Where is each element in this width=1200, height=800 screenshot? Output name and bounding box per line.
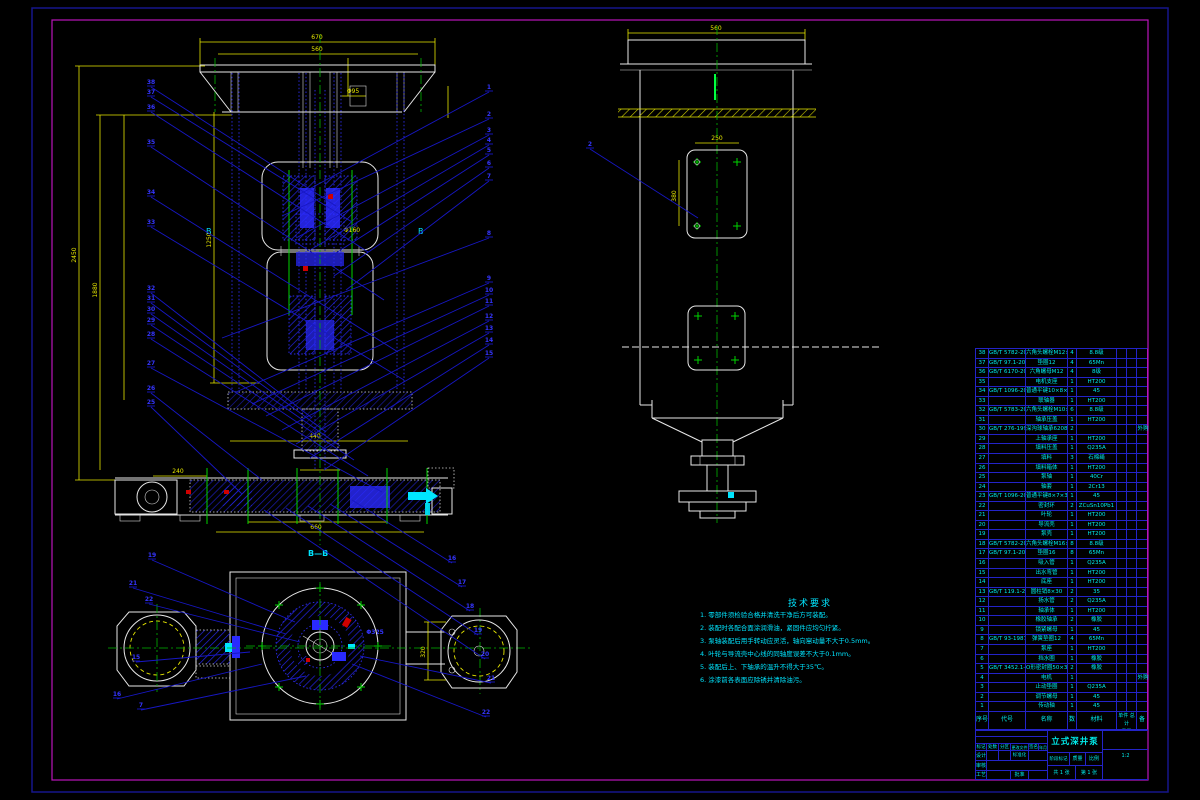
- bom-cell: [1127, 597, 1137, 606]
- bom-cell: [989, 378, 1026, 387]
- tb-zone: 分区: [999, 744, 1011, 751]
- bom-cell: [1117, 664, 1127, 673]
- bom-cell: [1127, 588, 1137, 597]
- bom-cell: [1127, 464, 1137, 473]
- bom-row: 6挡水圈1橡胶: [976, 655, 1147, 665]
- svg-text:Φ95: Φ95: [347, 88, 360, 95]
- bom-header-code: 代号: [989, 712, 1026, 729]
- bom-cell: 65Mn: [1077, 549, 1117, 558]
- bom-row: 12扬水管2Q235A: [976, 597, 1147, 607]
- bom-cell: 普通平键10×8×50: [1026, 387, 1068, 396]
- bom-cell: [1127, 521, 1137, 530]
- tb-sheet-no: 第 1 张: [1076, 766, 1103, 780]
- bom-cell: 泵座: [1026, 645, 1068, 654]
- bom-cell: 1: [1068, 521, 1077, 530]
- bom-cell: [1137, 588, 1149, 597]
- leader-line: [117, 664, 262, 699]
- bom-cell: 锁紧螺母: [1026, 626, 1068, 635]
- bom-cell: 六角头螺栓M12×45: [1026, 349, 1068, 358]
- bom-cell: 1: [1068, 530, 1077, 539]
- bom-cell: [1137, 655, 1149, 664]
- bom-cell: [1127, 549, 1137, 558]
- bom-row: 2调节螺母145: [976, 693, 1147, 703]
- bom-cell: GB/T 5782-2000: [989, 349, 1026, 358]
- balloon-number: 34: [147, 189, 155, 196]
- bom-cell: 1: [1068, 607, 1077, 616]
- bom-cell: 泵壳: [1026, 530, 1068, 539]
- bom-cell: [989, 511, 1026, 520]
- bom-cell: 6: [976, 655, 989, 664]
- bom-cell: [1117, 378, 1127, 387]
- tb-mark: 标记: [975, 744, 987, 751]
- bom-cell: [1117, 588, 1127, 597]
- bom-row: 24轴套12Cr13: [976, 483, 1147, 493]
- side-view-linework: [618, 26, 880, 523]
- leader-line: [222, 238, 489, 338]
- bom-cell: [989, 444, 1026, 453]
- balloon-number: 2: [588, 141, 592, 148]
- bom-row: 15出水弯管1HT200: [976, 569, 1147, 579]
- tech-req-line: 3. 泵轴装配后用手转动应灵活，轴向窜动量不大于0.5mm。: [700, 635, 890, 648]
- bom-cell: [1137, 597, 1149, 606]
- bom-cell: [1117, 635, 1127, 644]
- bom-cell: [1127, 406, 1137, 415]
- bom-row: 29上轴承座1HT200: [976, 435, 1147, 445]
- bom-row: 9锁紧螺母145: [976, 626, 1147, 636]
- bom-cell: 外购: [1137, 425, 1149, 434]
- bom-cell: [989, 483, 1026, 492]
- bom-cell: [1117, 655, 1127, 664]
- bom-header-no: 序号: [976, 712, 989, 729]
- bom-cell: 密封环: [1026, 502, 1068, 511]
- bom-row: 14底座1HT200: [976, 578, 1147, 588]
- bom-cell: [1117, 473, 1127, 482]
- bom-cell: [1117, 607, 1127, 616]
- bom-row: 8GB/T 93-1987弹簧垫圈12465Mn: [976, 635, 1147, 645]
- bom-row: 4电机1外购: [976, 674, 1147, 684]
- bom-cell: Q235A: [1077, 683, 1117, 692]
- bom-cell: 8: [1068, 540, 1077, 549]
- bom-cell: 36: [976, 368, 989, 377]
- bom-cell: 橡胶: [1077, 616, 1117, 625]
- cad-drawing-page: B B 670 560 2450 1880 1250 Φ95 Φ160 440 …: [0, 0, 1200, 800]
- balloon-number: 11: [485, 298, 493, 305]
- bom-cell: 填料: [1026, 454, 1068, 463]
- balloon-number: 22: [145, 596, 153, 603]
- bom-cell: 14: [976, 578, 989, 587]
- bom-cell: 35: [976, 378, 989, 387]
- bom-cell: [1137, 397, 1149, 406]
- bom-cell: 电机: [1026, 674, 1068, 683]
- tb-stage: 阶段标记: [1048, 753, 1070, 766]
- bom-cell: 普通平键8×7×36: [1026, 492, 1068, 501]
- bom-cell: [1127, 397, 1137, 406]
- svg-text:Φ325: Φ325: [366, 629, 384, 636]
- bom-cell: 1: [1068, 578, 1077, 587]
- bom-row: 10橡胶轴承2橡胶: [976, 616, 1147, 626]
- bom-cell: [989, 416, 1026, 425]
- bom-cell: 38: [976, 349, 989, 358]
- bom-header-name: 名称: [1026, 712, 1068, 729]
- bom-cell: [989, 454, 1026, 463]
- bom-cell: [1137, 464, 1149, 473]
- bom-cell: 出水弯管: [1026, 569, 1068, 578]
- bom-cell: [989, 674, 1026, 683]
- bom-cell: HT200: [1077, 578, 1117, 587]
- bom-cell: 导流壳: [1026, 521, 1068, 530]
- balloon-number: 30: [147, 306, 155, 313]
- bom-cell: 6: [1068, 406, 1077, 415]
- bom-cell: 45: [1077, 492, 1117, 501]
- bom-cell: 六角头螺栓M16×60: [1026, 540, 1068, 549]
- bom-cell: [1137, 702, 1149, 711]
- bom-cell: 19: [976, 530, 989, 539]
- bom-cell: 1: [1068, 655, 1077, 664]
- leader-line: [151, 368, 382, 492]
- balloon-number: 16: [113, 691, 121, 698]
- balloon-number: 25: [147, 399, 155, 406]
- bom-cell: [1137, 645, 1149, 654]
- bom-cell: [1137, 454, 1149, 463]
- balloon-number: 33: [147, 219, 155, 226]
- bom-cell: [1137, 444, 1149, 453]
- bom-cell: 24: [976, 483, 989, 492]
- bom-cell: 65Mn: [1077, 635, 1117, 644]
- bom-cell: 深沟球轴承6208: [1026, 425, 1068, 434]
- balloon-number: 36: [147, 104, 155, 111]
- bom-header-weight: 单件 总计 重量: [1117, 712, 1137, 729]
- bom-cell: 20: [976, 521, 989, 530]
- bom-cell: 45: [1077, 626, 1117, 635]
- bom-cell: 37: [976, 359, 989, 368]
- balloon-number: 20: [481, 651, 489, 658]
- bom-row: 16吸入管1Q235A: [976, 559, 1147, 569]
- bom-row: 11轴承体1HT200: [976, 607, 1147, 617]
- tb-scale-value: 1:2: [1103, 750, 1148, 762]
- bom-cell: 8: [976, 635, 989, 644]
- bom-cell: 1: [1068, 416, 1077, 425]
- bom-cell: 垫圈12: [1026, 359, 1068, 368]
- bom-row: 17GB/T 97.1-2002垫圈16865Mn: [976, 549, 1147, 559]
- leader-line: [590, 149, 698, 218]
- bom-row: 27填料3石棉绳: [976, 454, 1147, 464]
- balloon-number: 21: [487, 675, 495, 682]
- bom-cell: [1117, 693, 1127, 702]
- tech-req-line: 1. 零部件须检验合格并清洗干净后方可装配。: [700, 609, 890, 622]
- bom-cell: [1127, 454, 1137, 463]
- bom-cell: [989, 569, 1026, 578]
- leader-line: [151, 97, 352, 222]
- bom-cell: 30: [976, 425, 989, 434]
- bom-cell: 2: [1068, 616, 1077, 625]
- bom-row: 36GB/T 6170-2000六角螺母M1248级: [976, 368, 1147, 378]
- bom-cell: 10: [976, 616, 989, 625]
- balloon-number: 18: [466, 603, 474, 610]
- bom-cell: 8.8级: [1077, 406, 1117, 415]
- section-view-label: B—B: [308, 549, 328, 558]
- bom-cell: 4: [1068, 635, 1077, 644]
- bom-cell: [989, 397, 1026, 406]
- bom-cell: 26: [976, 464, 989, 473]
- bom-cell: 1: [1068, 464, 1077, 473]
- balloon-number: 19: [148, 552, 156, 559]
- bom-cell: [1127, 473, 1137, 482]
- bom-cell: O形密封圈50×3.55: [1026, 664, 1068, 673]
- bom-cell: 1: [1068, 473, 1077, 482]
- balloon-number: 28: [147, 331, 155, 338]
- bom-cell: GB/T 1096-2003: [989, 387, 1026, 396]
- bom-cell: 23: [976, 492, 989, 501]
- bom-cell: [1117, 397, 1127, 406]
- bom-row: 35电机支座1HT200: [976, 378, 1147, 388]
- bom-cell: HT200: [1077, 435, 1117, 444]
- bom-cell: HT200: [1077, 397, 1117, 406]
- bom-cell: 1: [1068, 492, 1077, 501]
- bom-cell: 2: [1068, 597, 1077, 606]
- bom-cell: 2: [1068, 502, 1077, 511]
- bom-cell: 1: [1068, 387, 1077, 396]
- bom-cell: [1137, 693, 1149, 702]
- bom-cell: [1127, 702, 1137, 711]
- bom-cell: [989, 655, 1026, 664]
- bom-cell: [1077, 674, 1117, 683]
- bom-cell: [1137, 626, 1149, 635]
- balloon-number: 2: [487, 111, 491, 118]
- bom-cell: 25: [976, 473, 989, 482]
- bom-cell: HT200: [1077, 464, 1117, 473]
- bom-cell: HT200: [1077, 416, 1117, 425]
- bom-cell: [1127, 683, 1137, 692]
- bom-cell: 4: [1068, 359, 1077, 368]
- tb-count: 处数: [987, 744, 999, 751]
- balloon-number: 29: [147, 317, 155, 324]
- bom-row: 37GB/T 97.1-2002垫圈12465Mn: [976, 359, 1147, 369]
- bom-header-note: 备注: [1137, 712, 1147, 729]
- bom-cell: 扬水管: [1026, 597, 1068, 606]
- technical-requirements-title: 技术要求: [750, 596, 870, 609]
- bom-cell: [1127, 425, 1137, 434]
- bom-cell: 34: [976, 387, 989, 396]
- bom-cell: 橡胶轴承: [1026, 616, 1068, 625]
- balloon-number: 14: [485, 337, 493, 344]
- balloon-number: 15: [132, 654, 140, 661]
- bom-cell: HT200: [1077, 645, 1117, 654]
- bom-row: 22密封环2ZCuSn10Pb1: [976, 502, 1147, 512]
- bom-cell: [1137, 387, 1149, 396]
- bom-cell: 1: [1068, 626, 1077, 635]
- bom-cell: 12: [976, 597, 989, 606]
- balloon-number: 13: [485, 325, 493, 332]
- bom-row: 33联轴器1HT200: [976, 397, 1147, 407]
- bom-cell: 4: [1068, 349, 1077, 358]
- bom-cell: Q235A: [1077, 597, 1117, 606]
- bom-cell: 上轴承座: [1026, 435, 1068, 444]
- bom-cell: [989, 530, 1026, 539]
- bom-cell: [1137, 416, 1149, 425]
- bom-cell: [989, 502, 1026, 511]
- bom-cell: [1127, 349, 1137, 358]
- bom-cell: [1137, 502, 1149, 511]
- bom-cell: [1117, 626, 1127, 635]
- tb-approve: 批准: [1011, 771, 1029, 780]
- bom-cell: GB/T 1096-2003: [989, 492, 1026, 501]
- bom-cell: 22: [976, 502, 989, 511]
- bom-cell: HT200: [1077, 511, 1117, 520]
- bom-cell: GB/T 97.1-2002: [989, 549, 1026, 558]
- bom-cell: [1127, 607, 1137, 616]
- bom-cell: [1117, 597, 1127, 606]
- bom-cell: [1127, 674, 1137, 683]
- bom-cell: [1127, 368, 1137, 377]
- leader-line: [252, 295, 489, 404]
- bom-cell: [1137, 569, 1149, 578]
- bom-cell: GB/T 93-1987: [989, 635, 1026, 644]
- bom-cell: [1127, 578, 1137, 587]
- svg-text:Φ160: Φ160: [344, 227, 360, 234]
- bom-cell: [1117, 444, 1127, 453]
- tb-mass: 质量: [1070, 753, 1086, 766]
- leader-line: [236, 283, 489, 392]
- bom-cell: [1127, 655, 1137, 664]
- svg-text:560: 560: [311, 46, 323, 53]
- bom-cell: [989, 464, 1026, 473]
- leader-line: [141, 676, 306, 710]
- bom-row: 30GB/T 276-1994深沟球轴承62082外购: [976, 425, 1147, 435]
- bom-cell: 29: [976, 435, 989, 444]
- bom-header-mat: 材料: [1077, 712, 1117, 729]
- svg-text:1880: 1880: [92, 282, 99, 297]
- bom-cell: [1117, 559, 1127, 568]
- bom-cell: 1: [1068, 645, 1077, 654]
- bom-row: 5GB/T 3452.1-2005O形密封圈50×3.552橡胶: [976, 664, 1147, 674]
- bom-cell: [1137, 664, 1149, 673]
- bom-cell: 65Mn: [1077, 359, 1117, 368]
- balloon-number: 21: [129, 580, 137, 587]
- balloon-number: 16: [448, 555, 456, 562]
- bom-cell: 45: [1077, 387, 1117, 396]
- bom-cell: 1: [1068, 378, 1077, 387]
- bom-cell: [1137, 559, 1149, 568]
- leader-line: [300, 92, 489, 194]
- bom-cell: 底座: [1026, 578, 1068, 587]
- bom-cell: 挡水圈: [1026, 655, 1068, 664]
- bom-cell: 1: [1068, 435, 1077, 444]
- bom-cell: 2Cr13: [1077, 483, 1117, 492]
- bom-cell: 1: [1068, 693, 1077, 702]
- bom-cell: 垫圈16: [1026, 549, 1068, 558]
- balloon-number: 32: [147, 285, 155, 292]
- bom-cell: [989, 473, 1026, 482]
- bom-cell: [1117, 359, 1127, 368]
- bom-row: 1传动轴145: [976, 702, 1147, 712]
- svg-text:1250: 1250: [206, 232, 213, 247]
- bom-cell: [989, 597, 1026, 606]
- bom-cell: [1117, 435, 1127, 444]
- tb-process: 工艺: [975, 771, 987, 780]
- bom-row: 26填料箱体1HT200: [976, 464, 1147, 474]
- bom-cell: [1127, 378, 1137, 387]
- bom-cell: [1117, 540, 1127, 549]
- bom-cell: [1137, 683, 1149, 692]
- section-view-linework: B—B: [108, 549, 530, 720]
- bom-header-qty: 数量: [1068, 712, 1077, 729]
- bom-rows: 38GB/T 5782-2000六角头螺栓M12×4548.8级37GB/T 9…: [975, 348, 1148, 712]
- svg-text:380: 380: [671, 190, 678, 202]
- balloon-number: 8: [487, 230, 491, 237]
- bom-cell: [1127, 540, 1137, 549]
- bom-row: 34GB/T 1096-2003普通平键10×8×50145: [976, 387, 1147, 397]
- bom-cell: HT200: [1077, 569, 1117, 578]
- bom-row: 38GB/T 5782-2000六角头螺栓M12×4548.8级: [976, 349, 1147, 359]
- bom-cell: 泵轴: [1026, 473, 1068, 482]
- bom-cell: 轴承体: [1026, 607, 1068, 616]
- bom-cell: [1117, 454, 1127, 463]
- tb-scale: 比例: [1086, 753, 1103, 766]
- bom-cell: [989, 683, 1026, 692]
- bom-cell: 传动轴: [1026, 702, 1068, 711]
- balloon-number: 10: [485, 287, 493, 294]
- bom-cell: HT200: [1077, 521, 1117, 530]
- bom-cell: [1137, 607, 1149, 616]
- bom-cell: [1127, 492, 1137, 501]
- bom-cell: [1117, 549, 1127, 558]
- bom-cell: GB/T 6170-2000: [989, 368, 1026, 377]
- leader-line: [151, 87, 336, 206]
- bom-cell: 六角头螺栓M10×35: [1026, 406, 1068, 415]
- bom-cell: ZCuSn10Pb1: [1077, 502, 1117, 511]
- bom-cell: 31: [976, 416, 989, 425]
- balloon-number: 38: [147, 79, 155, 86]
- bom-cell: [1137, 578, 1149, 587]
- bom-cell: 40Cr: [1077, 473, 1117, 482]
- bom-cell: 16: [976, 559, 989, 568]
- drawing-title: 立式深井泵装配图: [1048, 730, 1103, 753]
- balloon-number: 35: [147, 139, 155, 146]
- bom-cell: 橡胶: [1077, 655, 1117, 664]
- bom-cell: 4: [976, 674, 989, 683]
- balloon-number: 17: [458, 579, 466, 586]
- bom-cell: GB/T 119.1-2000: [989, 588, 1026, 597]
- bom-cell: [1117, 416, 1127, 425]
- bom-cell: 填料箱体: [1026, 464, 1068, 473]
- bom-cell: [1127, 693, 1137, 702]
- bom-row: 28填料压盖1Q235A: [976, 444, 1147, 454]
- bom-cell: Q235A: [1077, 559, 1117, 568]
- balloon-number: 27: [147, 360, 155, 367]
- tech-req-line: 2. 装配时各配合面涂润滑油，紧固件应均匀拧紧。: [700, 622, 890, 635]
- tech-req-line: 5. 装配后上、下轴承的温升不得大于35℃。: [700, 661, 890, 674]
- part-leader-lines: 3837363534333231302928272625123456789101…: [113, 79, 698, 717]
- bom-cell: HT200: [1077, 378, 1117, 387]
- bom-cell: [1137, 435, 1149, 444]
- bom-cell: 圆柱销8×30: [1026, 588, 1068, 597]
- bom-cell: [1117, 530, 1127, 539]
- bom-cell: GB/T 3452.1-2005: [989, 664, 1026, 673]
- bom-cell: GB/T 97.1-2002: [989, 359, 1026, 368]
- bom-cell: GB/T 5783-2000: [989, 406, 1026, 415]
- bom-cell: [1127, 387, 1137, 396]
- bom-cell: 33: [976, 397, 989, 406]
- bom-cell: 1: [1068, 674, 1077, 683]
- bom-cell: [1137, 549, 1149, 558]
- balloon-number: 1: [487, 84, 491, 91]
- balloon-number: 12: [485, 313, 493, 320]
- tb-sign: 签名: [1029, 744, 1039, 751]
- balloon-number: 9: [487, 275, 491, 282]
- bom-cell: 1: [1068, 702, 1077, 711]
- bom-cell: 5: [976, 664, 989, 673]
- svg-text:2450: 2450: [71, 247, 78, 262]
